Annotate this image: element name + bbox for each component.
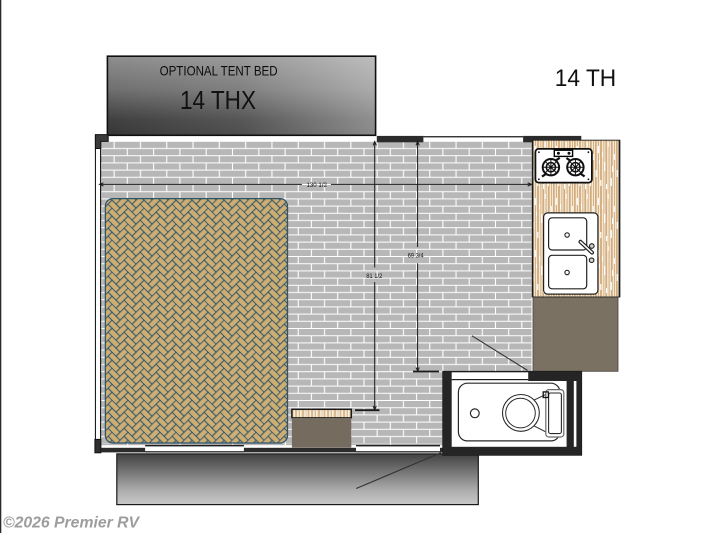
- svg-text:69 3/4: 69 3/4: [408, 253, 424, 260]
- svg-text:14 THX: 14 THX: [180, 85, 256, 115]
- svg-text:14 TH: 14 TH: [555, 65, 616, 92]
- svg-text:©2026 Premier RV: ©2026 Premier RV: [3, 515, 140, 532]
- svg-text:OPTIONAL TENT BED: OPTIONAL TENT BED: [160, 62, 278, 78]
- svg-text:81 1/2: 81 1/2: [366, 273, 382, 280]
- svg-text:130 1/2: 130 1/2: [306, 182, 327, 189]
